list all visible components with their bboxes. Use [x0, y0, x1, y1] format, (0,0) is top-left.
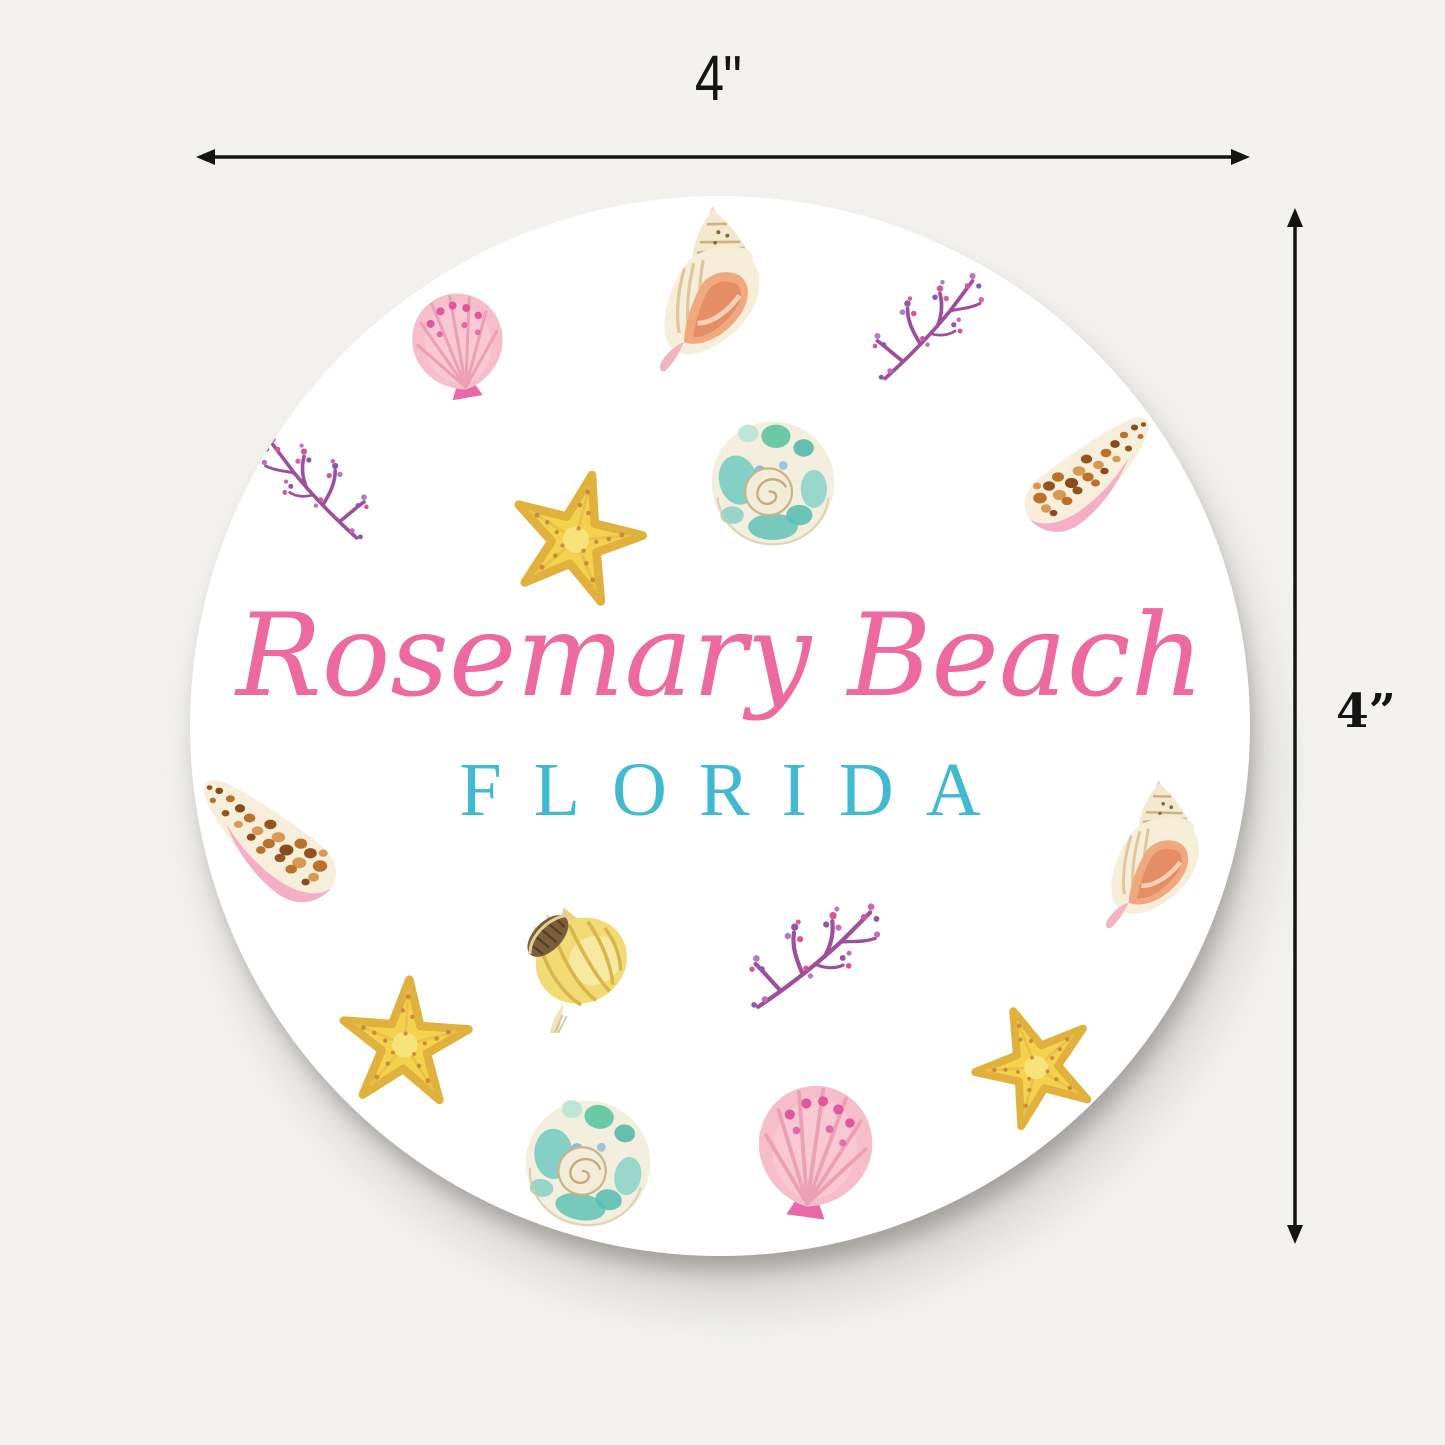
product-dimension-image: 4" 4” Rosemary Beach FLORIDA [0, 0, 1445, 1445]
coral-branch-icon [734, 879, 892, 1037]
conch-shell-icon [617, 196, 812, 392]
coaster-title: Rosemary Beach [190, 588, 1250, 725]
turban-snail-shell-icon [698, 410, 848, 556]
scallop-shell-icon [731, 1063, 898, 1232]
coaster: Rosemary Beach FLORIDA [190, 196, 1250, 1256]
whelk-shell-icon [505, 883, 655, 1033]
height-dimension-arrow [1284, 206, 1306, 1246]
starfish-icon [944, 977, 1125, 1153]
turban-snail-shell-icon [500, 1077, 675, 1249]
coral-branch-icon [246, 430, 386, 550]
coaster-subtitle: FLORIDA [190, 752, 1250, 828]
height-dimension-label: 4” [1336, 688, 1396, 735]
coral-branch-icon [860, 266, 995, 391]
scallop-shell-icon [389, 270, 527, 417]
leopard-cone-shell-icon [1000, 408, 1170, 558]
width-dimension-arrow [194, 146, 1252, 168]
width-dimension-label: 4" [695, 46, 741, 110]
starfish-icon [324, 966, 486, 1118]
